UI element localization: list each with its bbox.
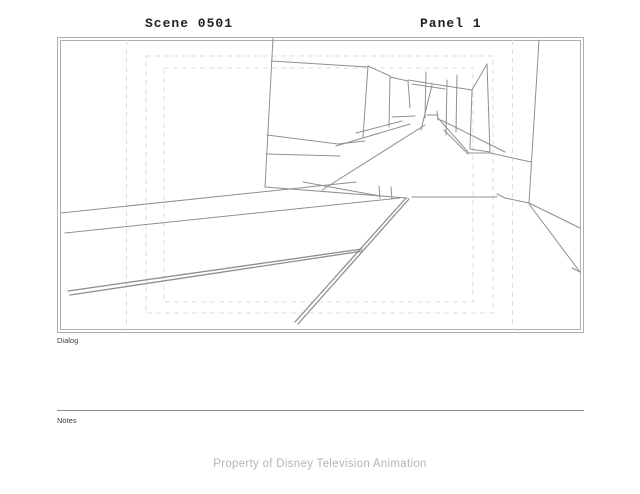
property-footer-text: Property of Disney Television Animation <box>0 458 640 470</box>
storyboard-sheet: Scene 0501 Panel 1 Dialog Notes Property… <box>0 0 640 494</box>
notes-section-label: Notes <box>57 416 77 425</box>
notes-divider <box>57 410 584 411</box>
storyboard-sketch <box>0 0 640 494</box>
dialog-section-label: Dialog <box>57 336 78 345</box>
sketch-lines <box>61 38 580 324</box>
